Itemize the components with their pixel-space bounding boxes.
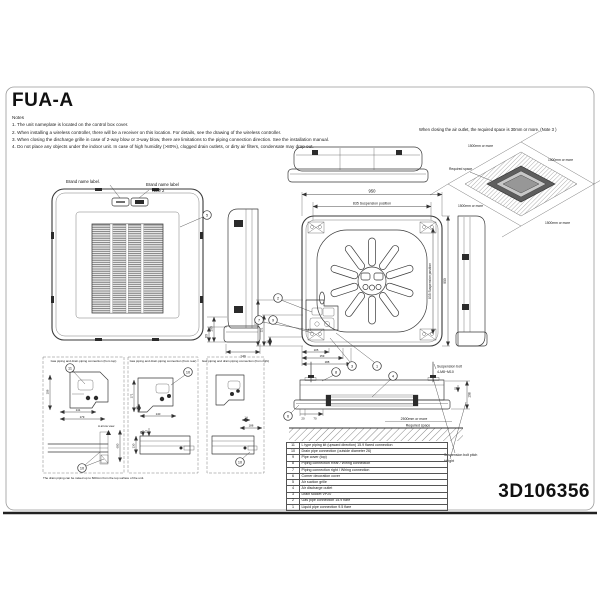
bolt-pitch-label: Suspension bolt pitch xyxy=(444,453,477,457)
dim-121: 121 xyxy=(260,327,264,332)
dim-suspension-right: 835 Suspension position xyxy=(428,263,432,299)
dim-25: 25 xyxy=(139,431,143,435)
required-space-note: When closing the air outlet, the require… xyxy=(419,127,557,132)
callout-8: 8 xyxy=(322,368,340,381)
side-dim-100: 100 xyxy=(209,326,213,332)
dim-140: 140 xyxy=(156,412,161,416)
parts-table: 11L type piping kit (upward direction) 1… xyxy=(286,442,448,511)
detail-box3-title: Gas piping and drain piping connection (… xyxy=(202,359,269,363)
clearance-2500: 2500mm or more xyxy=(401,417,428,421)
dim-70: 70 xyxy=(313,417,317,421)
dim-950-top: 950 xyxy=(369,189,377,194)
svg-text:1: 1 xyxy=(376,365,378,369)
dim-950-right: 950 xyxy=(443,278,447,284)
piping-detail-boxes: Gas piping and drain piping connection (… xyxy=(43,357,269,480)
dim-188-box3: 188 xyxy=(249,424,254,428)
clearance-bottom-right: 1500mm or more xyxy=(545,221,570,225)
suspension-bolt-label: Suspension bolt xyxy=(437,365,462,369)
detail-from-top: 11 108 141 179 A arrow view 600 xyxy=(46,364,120,473)
dim-105: 105 xyxy=(314,348,319,352)
arrow-view-glyph xyxy=(106,430,111,435)
dim-179: 179 xyxy=(80,415,85,419)
dim-20: 20 xyxy=(301,417,305,421)
svg-text:11: 11 xyxy=(68,367,72,371)
dim-198: 198 xyxy=(467,392,471,398)
part-number: 1 xyxy=(287,504,300,510)
detail-from-rear: 10 171 28 140 130 25 57 xyxy=(130,368,194,454)
unit-elevation-top xyxy=(288,147,428,182)
drawing-sheet: FUA-A Notes 1. The unit nameplate is loc… xyxy=(0,0,600,600)
suspension-bracket xyxy=(308,222,324,233)
dim-suspension-top: 835 Suspension position xyxy=(353,202,391,206)
dim-28: 28 xyxy=(135,406,139,410)
svg-text:5: 5 xyxy=(206,214,208,218)
dim-57: 57 xyxy=(145,430,149,434)
required-space-install: Required space xyxy=(406,424,431,428)
svg-text:9: 9 xyxy=(272,319,274,323)
callout-6: 6 xyxy=(284,405,299,420)
part-desc: Liquid pipe connection 9.5 flare xyxy=(300,504,448,510)
dim-130: 130 xyxy=(132,443,136,448)
drawing-number: 3D106356 xyxy=(455,481,590,503)
svg-text:10: 10 xyxy=(80,467,84,471)
callout-5: 5 xyxy=(180,211,211,227)
svg-text:10: 10 xyxy=(238,461,242,465)
side-dim-60: 60 xyxy=(204,334,208,338)
svg-text:3: 3 xyxy=(351,365,353,369)
dim-25-install: 25 xyxy=(454,387,458,391)
right-elevation xyxy=(456,216,487,346)
clearance-bottom-left: 1500mm or more xyxy=(458,204,483,208)
svg-text:10: 10 xyxy=(186,371,190,375)
ceiling-hatch xyxy=(289,428,463,441)
detail-from-right: 14 188 10 xyxy=(212,375,262,466)
side-view: 100 60 140 xyxy=(204,209,260,359)
clearance-top-left: 1500mm or more xyxy=(468,144,493,148)
svg-text:6: 6 xyxy=(287,415,289,419)
dim-159: 159 xyxy=(320,354,325,358)
detail-box1-title: Gas piping and drain piping connection (… xyxy=(51,359,117,363)
svg-text:4: 4 xyxy=(392,375,394,379)
parts-table-body: 11L type piping kit (upward direction) 1… xyxy=(287,443,448,511)
dim-108: 108 xyxy=(46,389,50,394)
piping-connection-detail xyxy=(306,300,338,330)
dim-188: 188 xyxy=(325,360,330,364)
dim-36: 36 xyxy=(266,340,270,344)
front-view: Brand name label. Brand name label Note … xyxy=(51,179,211,341)
dim-171: 171 xyxy=(130,393,134,398)
dim-14: 14 xyxy=(244,416,248,420)
drain-piping-note: The drain piping can be raised up to 600… xyxy=(43,476,144,480)
brand-label-2-note: Note 2 xyxy=(152,188,165,193)
brand-label-1: Brand name label. xyxy=(66,179,100,184)
callout-4: 4 xyxy=(372,372,397,397)
fan-hub xyxy=(358,267,386,295)
brand-label-2: Brand name label xyxy=(146,182,179,187)
svg-text:2: 2 xyxy=(277,297,279,301)
fan-blades xyxy=(330,238,414,324)
suspension-bracket xyxy=(420,222,436,233)
arrow-view-label: A arrow view xyxy=(98,424,115,428)
detail-box2-title: Gas piping and drain piping connection (… xyxy=(130,359,197,363)
suspension-bolt-spec: 4-M8~M10 xyxy=(437,370,454,374)
callout-1: 1 xyxy=(336,333,381,370)
table-row: 1Liquid pipe connection 9.5 flare xyxy=(287,504,448,510)
dim-141: 141 xyxy=(76,408,81,412)
clearance-top-right: 1500mm or more xyxy=(548,158,573,162)
svg-text:8: 8 xyxy=(335,371,337,375)
side-dim-140: 140 xyxy=(240,355,246,359)
dim-600: 600 xyxy=(116,443,120,448)
top-view: 950 835 Suspension position 835 Suspensi… xyxy=(254,189,450,371)
svg-text:7: 7 xyxy=(258,319,260,323)
suspension-bracket xyxy=(420,329,436,340)
suspension-bracket xyxy=(308,329,324,340)
required-space-label: Required space xyxy=(449,167,472,171)
required-space-diagram: When closing the air outlet, the require… xyxy=(419,127,600,237)
